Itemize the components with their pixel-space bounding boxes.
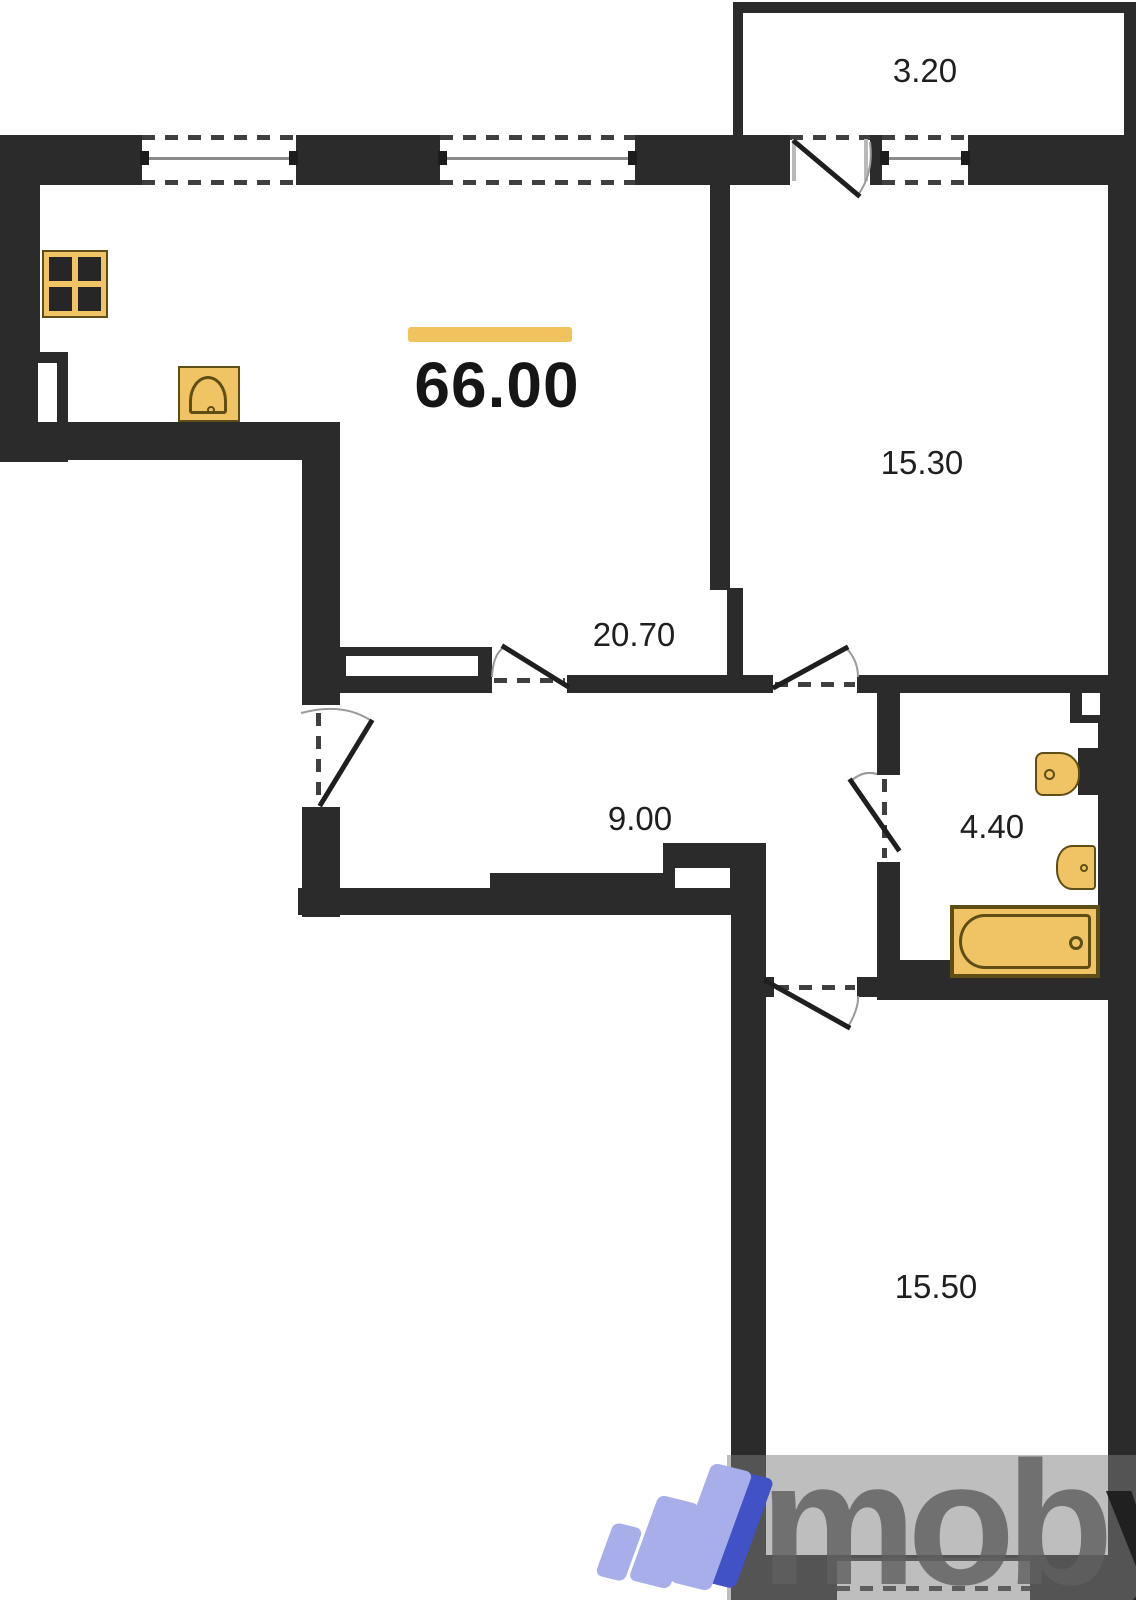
moby-logo-text: moby <box>760 1436 1136 1600</box>
room-label-bedroom-top: 15.30 <box>852 444 992 482</box>
washbasin-icon <box>1035 752 1080 796</box>
kitchen-sink-icon <box>178 366 240 422</box>
window-post <box>880 151 889 165</box>
window-post <box>140 151 149 165</box>
window-post <box>628 151 637 165</box>
wall-bedroom1-left-lower <box>727 588 743 678</box>
moby-logo-text-tail: y <box>1105 1426 1136 1600</box>
bathtub-icon <box>950 905 1100 978</box>
balcony-wall-top <box>733 2 1136 13</box>
bath-wall-niche <box>1082 693 1100 715</box>
room-label-hallway: 9.00 <box>575 800 705 838</box>
total-area-label: 66.00 <box>392 348 602 422</box>
moby-logo-text-main: mob <box>760 1426 1105 1600</box>
wall-bedroom1-left-upper <box>710 185 730 590</box>
living-door-icon <box>486 640 576 695</box>
wall-top-d <box>968 135 1136 185</box>
balcony-wall-left <box>733 2 743 142</box>
bathtub-drain <box>1069 936 1083 950</box>
window-centerline <box>885 157 965 160</box>
room-label-bathroom: 4.40 <box>932 808 1052 846</box>
window-dash <box>142 135 296 140</box>
total-area-accent-bar <box>408 327 572 342</box>
wall-kitchen-bottom <box>0 422 340 460</box>
floor-plan: 66.00 3.20 15.30 20.70 9.00 4.40 15.50 m… <box>0 0 1136 1600</box>
window-centerline <box>443 157 632 160</box>
window-dash <box>440 135 635 140</box>
entry-door-icon <box>294 698 384 813</box>
living-band-inset <box>346 656 478 676</box>
wall-bath-bottom-left <box>877 960 955 1000</box>
bedroom2-door-icon <box>758 975 868 1035</box>
bath-niche-border-bottom <box>1082 715 1100 723</box>
wall-top-b <box>296 135 440 185</box>
wall-left <box>0 135 40 360</box>
stove-burners <box>49 257 101 311</box>
window-dash <box>882 180 968 185</box>
sink-drain <box>207 406 215 414</box>
room-label-living-kitchen: 20.70 <box>564 616 704 654</box>
washbasin-drain <box>1044 769 1055 780</box>
wall-sink-bump <box>1078 748 1108 795</box>
kitchen-duct-niche <box>38 363 57 422</box>
wall-hall-ledge <box>490 873 663 890</box>
wall-bath-right <box>1098 675 1136 1000</box>
window-kitchen-2 <box>440 135 635 185</box>
window-bedroom1 <box>882 135 968 185</box>
window-post <box>438 151 447 165</box>
window-dash <box>142 180 296 185</box>
room-label-balcony: 3.20 <box>865 52 985 90</box>
bath-niche-border-left <box>1070 693 1082 723</box>
stove-icon <box>42 250 108 318</box>
toilet-icon <box>1056 845 1096 890</box>
window-post <box>961 151 970 165</box>
balcony-door-icon <box>788 133 880 205</box>
window-centerline <box>145 157 293 160</box>
window-dash <box>882 135 968 140</box>
wall-living-band-right <box>857 675 1136 693</box>
balcony-wall-right <box>1124 2 1136 142</box>
bathroom-door-icon <box>843 763 905 858</box>
bedroom1-door-icon <box>768 640 868 695</box>
wall-bath-left-lower <box>877 862 900 962</box>
junction-notch <box>675 868 730 888</box>
window-kitchen-1 <box>142 135 296 185</box>
room-label-bedroom-bottom: 15.50 <box>866 1268 1006 1306</box>
wall-corridor-left-upper <box>302 460 340 705</box>
window-dash <box>440 180 635 185</box>
wall-top-c <box>635 135 790 185</box>
window-post <box>289 151 298 165</box>
toilet-mark <box>1080 864 1088 872</box>
